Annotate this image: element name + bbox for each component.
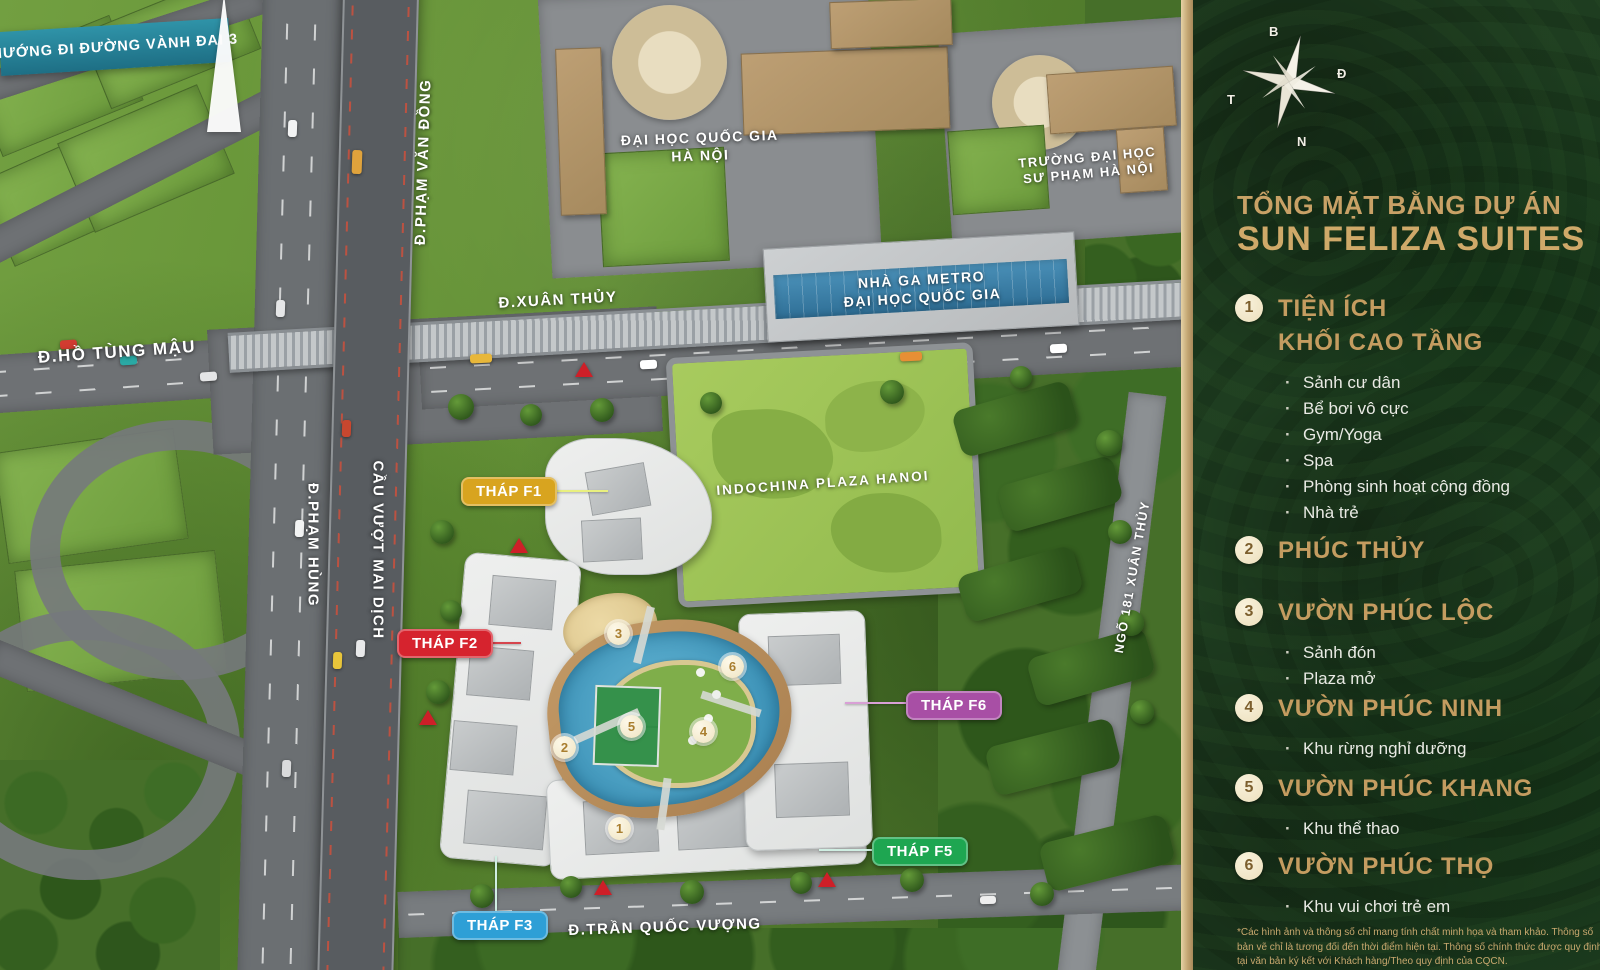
- lane-marking: [261, 0, 290, 970]
- legend-number-badge: 6: [1235, 852, 1263, 880]
- legend-bullet: Khu rừng nghỉ dưỡng: [1283, 736, 1503, 762]
- legend-number-badge: 5: [1235, 774, 1263, 802]
- bus: [352, 150, 363, 174]
- legend-item-5: 5 VƯỜN PHÚC KHANG Khu thể thao: [1235, 772, 1533, 842]
- legend-title: VƯỜN PHÚC KHANG: [1278, 772, 1533, 806]
- route-arrow: [419, 710, 437, 725]
- legend-bullet: Nhà trẻ: [1283, 500, 1510, 526]
- legend-bullet-list: Sảnh cư dân Bể bơi vô cực Gym/Yoga Spa P…: [1283, 370, 1510, 526]
- tag-thap-f2: THÁP F2: [397, 629, 493, 658]
- tree: [900, 868, 924, 892]
- legend-bullet: Gym/Yoga: [1283, 422, 1510, 448]
- direction-banner-label: HƯỚNG ĐI ĐƯỜNG VÀNH ĐAI 3: [0, 31, 239, 62]
- pool-umbrella: [712, 690, 721, 699]
- legend-bullet: Khu vui chơi trẻ em: [1283, 894, 1494, 920]
- legend-bullet: Sảnh đón: [1283, 640, 1494, 666]
- legend-bullet: Phòng sinh hoạt cộng đồng: [1283, 474, 1510, 500]
- compass-star-icon: [1239, 32, 1339, 132]
- tree: [448, 394, 474, 420]
- leader-line-f1: [549, 490, 608, 492]
- legend-title: VƯỜN PHÚC THỌ: [1278, 850, 1494, 884]
- legend-bullet: Spa: [1283, 448, 1510, 474]
- lawn-mound: [829, 490, 943, 576]
- tree: [470, 884, 494, 908]
- map-marker-6: 6: [721, 655, 744, 678]
- fountain-plaza: [612, 5, 727, 120]
- road-label-pham-hung: Đ.PHẠM HÙNG: [303, 483, 322, 607]
- tree: [560, 876, 582, 898]
- tower-roof: [450, 720, 518, 775]
- legend-item-2: 2 PHÚC THỦY: [1235, 534, 1425, 568]
- legend-title: PHÚC THỦY: [1278, 534, 1425, 568]
- car: [200, 371, 218, 381]
- tree: [430, 520, 454, 544]
- university-building: [829, 0, 953, 49]
- route-arrow: [818, 872, 836, 887]
- leader-line-f5: [819, 849, 872, 851]
- legend-number-badge: 2: [1235, 536, 1263, 564]
- compass-south-label: N: [1297, 134, 1306, 149]
- map-marker-5: 5: [620, 715, 643, 738]
- legend-title-line: TIỆN ÍCH: [1278, 292, 1510, 326]
- tree: [520, 404, 542, 426]
- legend-bullet: Sảnh cư dân: [1283, 370, 1510, 396]
- tree: [1096, 430, 1122, 456]
- tree: [1030, 882, 1054, 906]
- car: [282, 760, 292, 777]
- legend-bullet: Khu thể thao: [1283, 816, 1533, 842]
- tower-roof: [774, 762, 850, 819]
- car: [980, 896, 996, 905]
- pool-umbrella: [696, 668, 705, 677]
- place-label-vnu: ĐẠI HỌC QUỐC GIA HÀ NỘI: [621, 127, 780, 167]
- legend-number-badge: 4: [1235, 694, 1263, 722]
- route-arrow: [594, 880, 612, 895]
- compass-east-label: Đ: [1337, 66, 1346, 81]
- legend-item-4: 4 VƯỜN PHÚC NINH Khu rừng nghỉ dưỡng: [1235, 692, 1503, 762]
- road-label-cau-vuot-mai-dich: CẦU VƯỢT MAI DỊCH: [368, 460, 387, 639]
- car: [288, 120, 298, 137]
- university-building: [741, 46, 951, 135]
- university-building: [555, 47, 607, 216]
- car: [276, 300, 286, 317]
- gold-divider: [1181, 0, 1193, 970]
- tree: [680, 880, 704, 904]
- legend-bullet-list: Sảnh đón Plaza mở: [1283, 640, 1494, 692]
- panel-title-line2: SUN FELIZA SUITES: [1237, 220, 1585, 259]
- legend-title: VƯỜN PHÚC LỘC: [1278, 596, 1494, 630]
- compass-west-label: T: [1227, 92, 1235, 107]
- leader-line-f3: [495, 856, 497, 911]
- car: [333, 652, 343, 669]
- legend-item-6: 6 VƯỜN PHÚC THỌ Khu vui chơi trẻ em: [1235, 850, 1494, 920]
- leader-line-f6: [845, 702, 906, 704]
- compass-rose: B Đ N T: [1225, 26, 1355, 156]
- legend-bullet-list: Khu vui chơi trẻ em: [1283, 894, 1494, 920]
- car: [342, 420, 352, 437]
- tree: [590, 398, 614, 422]
- tower-roof: [585, 462, 652, 516]
- direction-arrow-icon: [207, 0, 241, 132]
- tag-thap-f3: THÁP F3: [452, 911, 548, 940]
- car: [640, 360, 657, 370]
- legend-bullet-list: Khu rừng nghỉ dưỡng: [1283, 736, 1503, 762]
- car: [356, 640, 366, 657]
- tag-thap-f6: THÁP F6: [906, 691, 1002, 720]
- legend-item-3: 3 VƯỜN PHÚC LỘC Sảnh đón Plaza mở: [1235, 596, 1494, 692]
- tower-roof: [581, 517, 643, 562]
- legend-panel: B Đ N T TỔNG MẶT BẰNG DỰ ÁN SUN FELIZA S…: [1193, 0, 1600, 970]
- route-arrow: [575, 362, 593, 377]
- disclaimer-text: *Các hình ảnh và thông số chỉ mang tính …: [1237, 926, 1600, 970]
- compass-north-label: B: [1269, 24, 1278, 39]
- tree: [440, 600, 462, 622]
- legend-title: VƯỜN PHÚC NINH: [1278, 692, 1503, 726]
- tree: [1108, 520, 1132, 544]
- tag-thap-f1: THÁP F1: [461, 477, 557, 506]
- legend-bullet: Bể bơi vô cực: [1283, 396, 1510, 422]
- university-building: [1046, 66, 1177, 135]
- lawn-mound: [823, 379, 927, 454]
- masterplan-map: Đ.HỒ TÙNG MẬU Đ.XUÂN THỦY Đ.PHẠM VĂN ĐỒN…: [0, 0, 1181, 970]
- car: [1050, 344, 1067, 354]
- bus: [900, 351, 922, 361]
- legend-bullet: Plaza mở: [1283, 666, 1494, 692]
- map-marker-1: 1: [608, 817, 631, 840]
- tag-thap-f5: THÁP F5: [872, 837, 968, 866]
- route-arrow: [510, 538, 528, 553]
- map-marker-4: 4: [692, 720, 715, 743]
- tree: [880, 380, 904, 404]
- legend-number-badge: 3: [1235, 598, 1263, 626]
- map-marker-3: 3: [607, 622, 630, 645]
- legend-item-1: 1 TIỆN ÍCH KHỐI CAO TẦNG Sảnh cư dân Bể …: [1235, 292, 1510, 526]
- legend-bullet-list: Khu thể thao: [1283, 816, 1533, 842]
- tree: [790, 872, 812, 894]
- tree: [1130, 700, 1154, 724]
- map-marker-2: 2: [553, 736, 576, 759]
- legend-title-line: KHỐI CAO TẦNG: [1278, 326, 1510, 360]
- panel-title-line1: TỔNG MẶT BẰNG DỰ ÁN: [1237, 190, 1561, 221]
- tree: [700, 392, 722, 414]
- tower-roof: [463, 790, 547, 851]
- tower-roof: [488, 575, 556, 630]
- bus: [470, 353, 492, 363]
- legend-title: TIỆN ÍCH KHỐI CAO TẦNG: [1278, 292, 1510, 360]
- legend-number-badge: 1: [1235, 294, 1263, 322]
- tree: [426, 680, 450, 704]
- tree: [1010, 366, 1032, 388]
